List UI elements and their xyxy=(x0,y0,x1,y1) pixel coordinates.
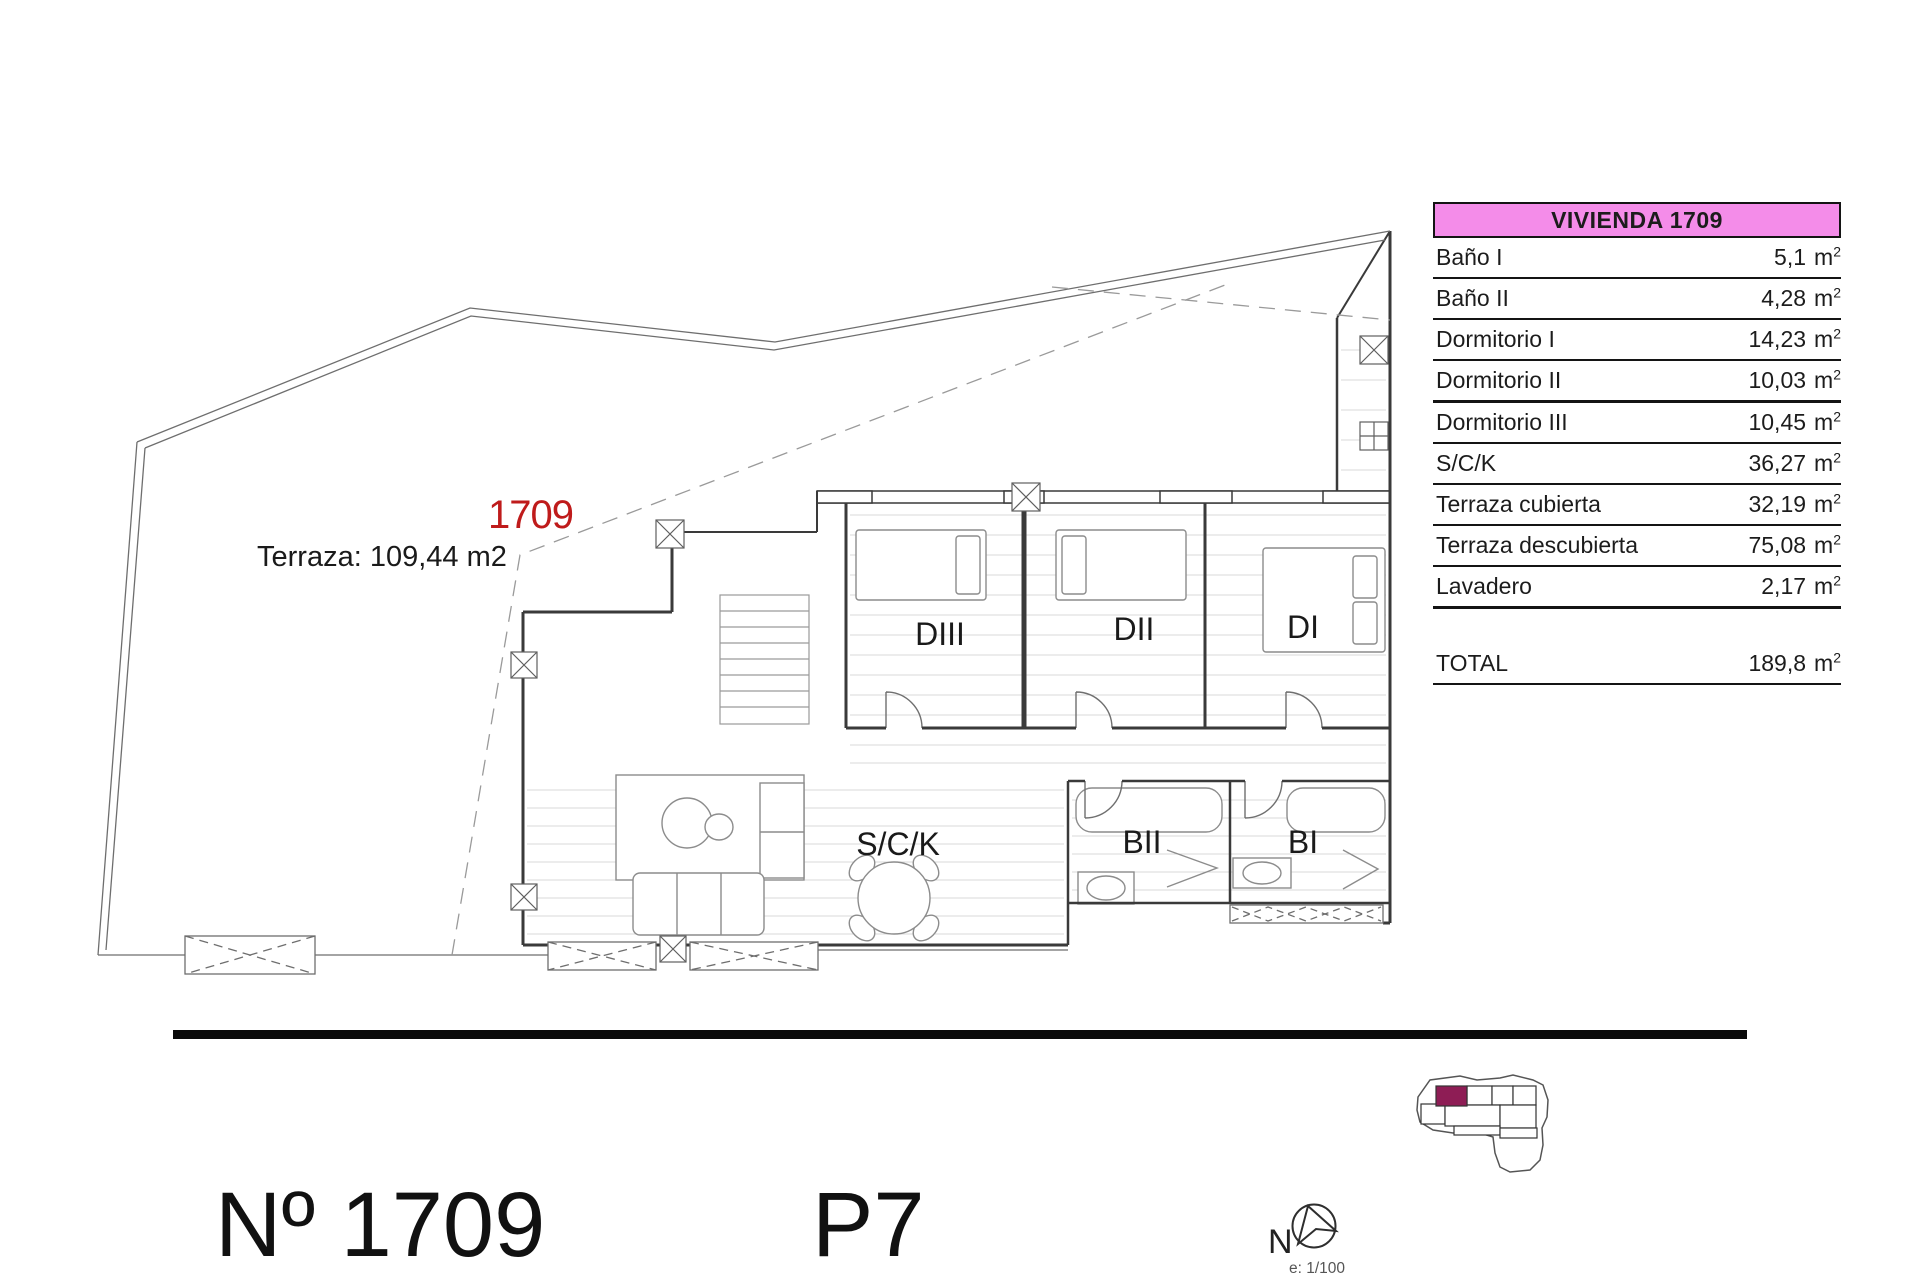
room-area: 14,23 xyxy=(1748,320,1806,359)
furniture xyxy=(616,530,1385,946)
column-x-icon xyxy=(1360,336,1388,364)
room-name: Dormitorio III xyxy=(1433,403,1748,442)
divider-rule xyxy=(173,1030,1747,1039)
table-row: Terraza cubierta 32,19 m2 xyxy=(1433,485,1841,526)
room-area: 32,19 xyxy=(1748,485,1806,524)
unit-number-red-label: 1709 xyxy=(488,493,573,537)
table-row: S/C/K 36,27 m2 xyxy=(1433,444,1841,485)
table-row: Lavadero 2,17 m2 xyxy=(1433,567,1841,609)
room-area: 10,45 xyxy=(1748,403,1806,442)
terrace-area-note: Terraza: 109,44 m2 xyxy=(257,541,507,573)
shower-symbol-bii xyxy=(1167,850,1217,887)
table-row: Dormitorio I 14,23 m2 xyxy=(1433,320,1841,361)
floor-plan-sheet: { "colors": { "accent_pink": "#F48CE9", … xyxy=(0,0,1920,1280)
area-table: VIVIENDA 1709 Baño I 5,1 m2 Baño II 4,28… xyxy=(1433,202,1841,685)
column-x-icon xyxy=(660,936,686,962)
room-name: Dormitorio I xyxy=(1433,320,1748,359)
column-x-icon xyxy=(656,520,684,548)
shower-symbol-bi xyxy=(1343,850,1378,889)
room-area: 36,27 xyxy=(1748,444,1806,483)
sink-bi xyxy=(1233,858,1291,888)
room-name: Lavadero xyxy=(1433,567,1761,606)
room-name: Terraza descubierta xyxy=(1433,526,1748,565)
room-name: Terraza cubierta xyxy=(1433,485,1748,524)
table-row: Baño II 4,28 m2 xyxy=(1433,279,1841,320)
column-x-icon xyxy=(511,652,537,678)
railing-x-box xyxy=(185,936,315,974)
room-area: 10,03 xyxy=(1748,361,1806,400)
room-area: 5,1 xyxy=(1774,238,1806,277)
room-name: Dormitorio II xyxy=(1433,361,1748,400)
table-row: Terraza descubierta 75,08 m2 xyxy=(1433,526,1841,567)
sheet-floor-label: P7 xyxy=(812,1174,925,1276)
railing-x-box xyxy=(548,942,656,970)
total-area: 189,8 xyxy=(1748,644,1806,683)
room-area: 75,08 xyxy=(1748,526,1806,565)
column-x-icon xyxy=(1012,483,1040,511)
shaft-cross-icon xyxy=(1360,422,1388,450)
dining-table xyxy=(844,850,943,945)
room-name: S/C/K xyxy=(1433,444,1748,483)
room-area: 2,17 xyxy=(1761,567,1806,606)
room-label-bi: BI xyxy=(1288,824,1318,860)
stairs xyxy=(720,595,809,724)
table-row: Dormitorio II 10,03 m2 xyxy=(1433,361,1841,403)
key-plan xyxy=(1417,1075,1548,1172)
room-label-di: DI xyxy=(1287,609,1319,645)
column-x-icon xyxy=(511,884,537,910)
table-row: Dormitorio III 10,45 m2 xyxy=(1433,403,1841,444)
scale-label: e: 1/100 xyxy=(1289,1260,1345,1277)
kitchen-counter xyxy=(616,775,804,880)
vent-strip xyxy=(1230,905,1383,923)
sink-bii xyxy=(1078,872,1134,904)
room-name: Baño II xyxy=(1433,279,1761,318)
bed-diii xyxy=(856,530,986,600)
north-label: N xyxy=(1268,1223,1293,1261)
room-label-bii: BII xyxy=(1122,824,1161,860)
sofa xyxy=(633,873,764,935)
bed-dii xyxy=(1056,530,1186,600)
table-row: Baño I 5,1 m2 xyxy=(1433,238,1841,279)
room-label-sck: S/C/K xyxy=(856,826,940,862)
total-label: TOTAL xyxy=(1433,644,1748,683)
room-label-dii: DII xyxy=(1114,611,1155,647)
table-total-row: TOTAL 189,8 m2 xyxy=(1433,644,1841,685)
area-table-title: VIVIENDA 1709 xyxy=(1433,202,1841,238)
north-compass-icon xyxy=(1293,1205,1337,1248)
railing-windows xyxy=(185,905,1383,974)
room-label-diii: DIII xyxy=(915,616,965,652)
bed-di xyxy=(1263,548,1385,652)
key-plan-highlighted-unit xyxy=(1436,1086,1467,1106)
railing-x-box xyxy=(690,942,818,970)
room-name: Baño I xyxy=(1433,238,1774,277)
room-area: 4,28 xyxy=(1761,279,1806,318)
sheet-unit-number: Nº 1709 xyxy=(215,1174,545,1276)
